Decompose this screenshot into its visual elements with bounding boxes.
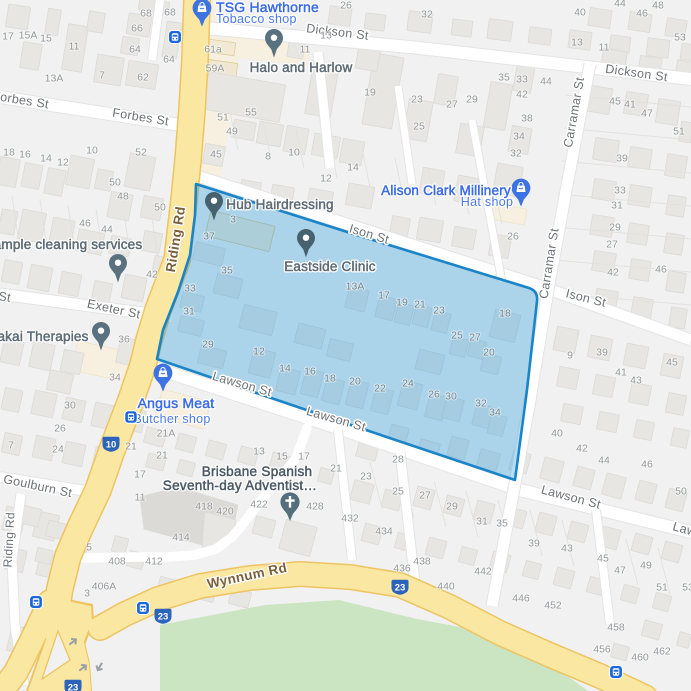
svg-text:26: 26 <box>428 389 440 401</box>
svg-text:46: 46 <box>655 264 667 276</box>
svg-text:Hat shop: Hat shop <box>461 195 513 209</box>
svg-text:55: 55 <box>245 107 257 119</box>
svg-text:23: 23 <box>411 94 423 106</box>
svg-text:47: 47 <box>641 108 653 120</box>
svg-text:10: 10 <box>106 440 117 451</box>
svg-text:29: 29 <box>609 222 621 234</box>
svg-text:49: 49 <box>226 126 238 138</box>
svg-text:34: 34 <box>109 372 121 384</box>
svg-text:420: 420 <box>216 506 234 518</box>
svg-text:26: 26 <box>54 423 66 435</box>
svg-text:32: 32 <box>475 398 487 410</box>
svg-text:21: 21 <box>414 299 426 311</box>
svg-text:Halo and Harlow: Halo and Harlow <box>250 60 353 75</box>
svg-text:11: 11 <box>300 44 311 56</box>
svg-text:44: 44 <box>614 0 626 10</box>
svg-text:452: 452 <box>544 600 562 612</box>
svg-text:446: 446 <box>512 593 530 605</box>
svg-text:13: 13 <box>571 37 583 49</box>
svg-text:8: 8 <box>265 151 271 163</box>
svg-text:47: 47 <box>614 565 626 577</box>
svg-text:15: 15 <box>276 451 288 463</box>
svg-text:64: 64 <box>129 44 141 56</box>
svg-text:39: 39 <box>528 538 540 550</box>
svg-text:41: 41 <box>615 367 627 379</box>
svg-text:29: 29 <box>466 94 478 106</box>
svg-text:akai Therapies: akai Therapies <box>0 329 89 344</box>
svg-text:27: 27 <box>606 239 618 251</box>
svg-text:43: 43 <box>561 543 573 555</box>
svg-text:27: 27 <box>446 99 458 111</box>
svg-text:414: 414 <box>172 532 190 544</box>
svg-text:31: 31 <box>476 516 488 528</box>
svg-text:14: 14 <box>40 153 52 165</box>
svg-text:14: 14 <box>279 363 291 375</box>
svg-text:46: 46 <box>636 8 648 20</box>
svg-text:11: 11 <box>599 42 610 54</box>
svg-text:432: 432 <box>341 513 359 525</box>
svg-text:442: 442 <box>474 566 492 578</box>
svg-text:460: 460 <box>631 652 649 664</box>
svg-text:44: 44 <box>540 76 552 88</box>
svg-text:23: 23 <box>68 683 79 691</box>
svg-text:45: 45 <box>597 553 609 565</box>
svg-text:41: 41 <box>624 99 636 111</box>
svg-text:418: 418 <box>195 501 213 513</box>
svg-text:19: 19 <box>364 87 376 99</box>
svg-text:7: 7 <box>8 440 14 452</box>
svg-text:68: 68 <box>164 7 176 19</box>
svg-text:Butcher shop: Butcher shop <box>133 412 210 426</box>
svg-text:14: 14 <box>347 162 359 174</box>
svg-text:39: 39 <box>616 153 628 165</box>
svg-text:26: 26 <box>507 231 519 243</box>
svg-text:428: 428 <box>306 501 324 513</box>
svg-text:28: 28 <box>392 454 404 466</box>
svg-text:52: 52 <box>135 147 147 159</box>
svg-text:26: 26 <box>340 0 352 12</box>
svg-text:37: 37 <box>203 231 215 243</box>
svg-text:408: 408 <box>108 556 126 568</box>
svg-text:35: 35 <box>221 265 233 277</box>
svg-text:5: 5 <box>86 542 92 554</box>
svg-text:Eastside Clinic: Eastside Clinic <box>284 259 376 274</box>
svg-text:29: 29 <box>446 501 458 513</box>
svg-text:33: 33 <box>184 283 196 295</box>
svg-text:15A: 15A <box>19 30 38 42</box>
svg-text:12: 12 <box>253 346 265 358</box>
svg-text:31: 31 <box>611 200 623 212</box>
svg-text:17: 17 <box>298 451 310 463</box>
svg-text:53: 53 <box>674 32 686 44</box>
svg-text:46: 46 <box>641 459 653 471</box>
svg-text:62: 62 <box>137 72 149 84</box>
svg-text:436: 436 <box>393 563 411 575</box>
svg-text:Seventh-day Adventist…: Seventh-day Adventist… <box>163 478 317 493</box>
svg-text:42: 42 <box>607 267 619 279</box>
svg-text:16: 16 <box>304 366 316 378</box>
svg-text:15: 15 <box>40 33 52 45</box>
svg-text:10: 10 <box>86 145 98 157</box>
svg-text:64: 64 <box>163 54 175 66</box>
svg-text:18: 18 <box>499 308 511 320</box>
svg-text:3: 3 <box>230 214 236 226</box>
svg-text:Angus Meat: Angus Meat <box>138 395 215 411</box>
svg-text:Brisbane Spanish: Brisbane Spanish <box>202 464 313 479</box>
svg-text:21A: 21A <box>157 428 176 440</box>
svg-text:24: 24 <box>52 444 64 456</box>
svg-text:42: 42 <box>146 269 158 281</box>
svg-text:34: 34 <box>513 131 525 143</box>
svg-text:25: 25 <box>451 330 463 342</box>
svg-text:24: 24 <box>402 378 414 390</box>
svg-text:412: 412 <box>145 556 163 568</box>
svg-text:51: 51 <box>656 582 668 594</box>
svg-text:30: 30 <box>64 400 76 412</box>
svg-text:13: 13 <box>253 446 265 458</box>
svg-text:50: 50 <box>154 202 166 214</box>
svg-text:12: 12 <box>57 157 69 169</box>
svg-text:11: 11 <box>69 41 80 53</box>
svg-text:17: 17 <box>378 290 390 302</box>
svg-text:23: 23 <box>433 305 445 317</box>
svg-text:458: 458 <box>607 622 625 634</box>
svg-text:19: 19 <box>396 297 408 309</box>
svg-text:13: 13 <box>320 30 332 42</box>
svg-text:25: 25 <box>413 121 425 133</box>
svg-text:13A: 13A <box>45 73 64 85</box>
svg-text:38: 38 <box>521 113 533 125</box>
svg-text:42: 42 <box>516 89 528 101</box>
svg-text:45: 45 <box>210 149 222 161</box>
svg-text:32: 32 <box>510 148 522 160</box>
svg-text:34: 34 <box>489 407 501 419</box>
svg-text:33: 33 <box>516 74 528 86</box>
svg-text:51: 51 <box>217 112 229 124</box>
svg-text:16: 16 <box>19 149 31 161</box>
svg-text:61a: 61a <box>204 44 222 56</box>
svg-text:9: 9 <box>567 350 573 362</box>
svg-text:21: 21 <box>156 450 168 462</box>
svg-text:31: 31 <box>183 306 195 318</box>
svg-text:3: 3 <box>84 588 90 600</box>
svg-text:23: 23 <box>360 471 372 483</box>
svg-text:66: 66 <box>131 23 143 35</box>
svg-text:22: 22 <box>374 383 386 395</box>
svg-text:25: 25 <box>392 486 404 498</box>
svg-text:45: 45 <box>609 96 621 108</box>
svg-text:50: 50 <box>675 486 687 498</box>
svg-text:30: 30 <box>445 391 457 403</box>
svg-text:45: 45 <box>666 357 678 369</box>
svg-text:40: 40 <box>574 7 586 19</box>
svg-text:68: 68 <box>140 8 152 20</box>
svg-text:44: 44 <box>598 455 610 467</box>
svg-text:27: 27 <box>419 490 431 502</box>
svg-text:12: 12 <box>320 173 332 185</box>
svg-text:32: 32 <box>421 9 433 21</box>
svg-text:434: 434 <box>375 526 393 538</box>
svg-text:17: 17 <box>134 469 146 481</box>
svg-text:43: 43 <box>630 375 642 387</box>
svg-text:Tobacco shop: Tobacco shop <box>216 12 297 26</box>
svg-text:11: 11 <box>135 492 146 504</box>
svg-text:42: 42 <box>576 443 588 455</box>
svg-text:27: 27 <box>469 332 481 344</box>
svg-text:40: 40 <box>551 428 563 440</box>
svg-text:36: 36 <box>118 334 130 346</box>
svg-text:440: 440 <box>437 581 455 593</box>
svg-text:438: 438 <box>413 556 431 568</box>
svg-text:39: 39 <box>596 347 608 359</box>
svg-text:17: 17 <box>2 31 14 43</box>
svg-text:18: 18 <box>324 373 336 385</box>
svg-text:422: 422 <box>250 499 268 511</box>
svg-text:53: 53 <box>682 582 691 594</box>
svg-text:35: 35 <box>496 518 508 530</box>
svg-text:50: 50 <box>109 177 121 189</box>
svg-text:44: 44 <box>101 224 113 236</box>
svg-text:46: 46 <box>79 218 91 230</box>
svg-text:20: 20 <box>483 347 495 359</box>
svg-text:10: 10 <box>288 147 300 159</box>
svg-text:462: 462 <box>653 646 671 658</box>
svg-text:23: 23 <box>158 612 169 623</box>
svg-text:18: 18 <box>3 147 15 159</box>
svg-text:21: 21 <box>330 463 342 475</box>
svg-text:23: 23 <box>395 583 406 594</box>
svg-text:ample cleaning services: ample cleaning services <box>0 237 142 252</box>
svg-text:456: 456 <box>593 644 611 656</box>
svg-text:7: 7 <box>99 70 105 82</box>
svg-text:406A: 406A <box>92 581 117 593</box>
svg-text:48: 48 <box>652 0 664 12</box>
svg-text:21: 21 <box>125 441 137 453</box>
svg-text:29: 29 <box>202 339 214 351</box>
svg-text:59A: 59A <box>206 63 225 75</box>
svg-text:Riding Rd: Riding Rd <box>1 512 18 568</box>
svg-text:33: 33 <box>614 185 626 197</box>
svg-text:48: 48 <box>117 191 129 203</box>
svg-text:20: 20 <box>349 376 361 388</box>
svg-text:51: 51 <box>673 126 685 138</box>
svg-text:Hub Hairdressing: Hub Hairdressing <box>226 197 334 212</box>
svg-text:35: 35 <box>498 72 510 84</box>
svg-text:49: 49 <box>640 560 652 572</box>
svg-text:13A: 13A <box>346 281 365 293</box>
